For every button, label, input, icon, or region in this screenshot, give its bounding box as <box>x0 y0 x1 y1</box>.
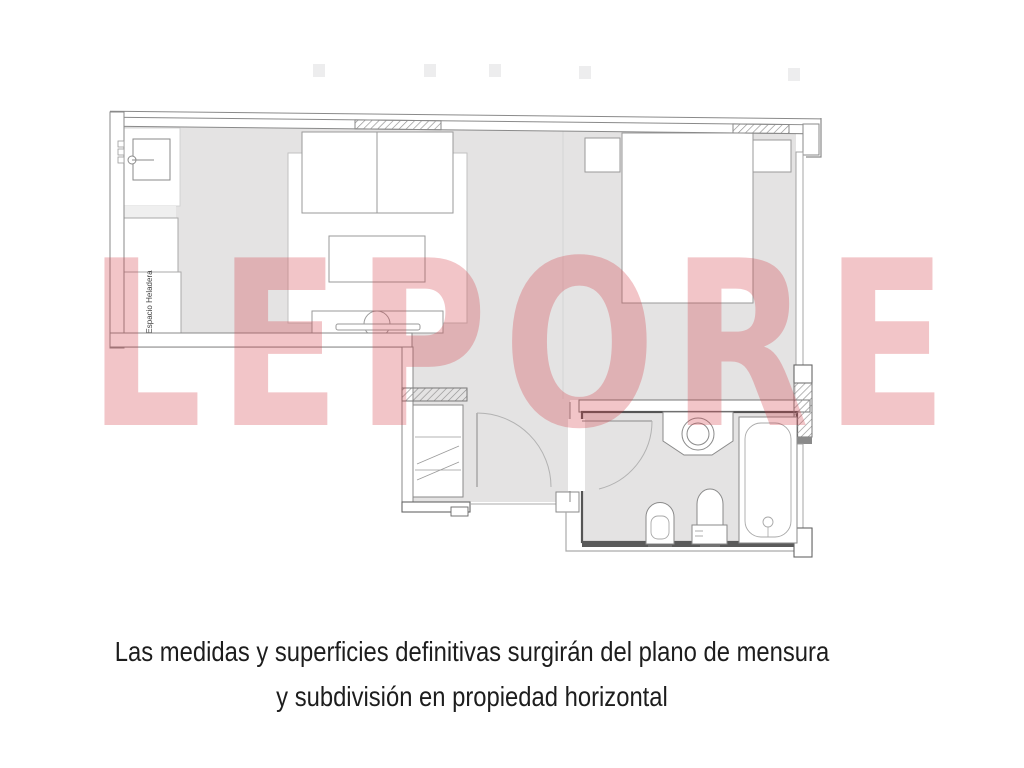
hatched-wall-top-2 <box>733 124 789 134</box>
disclaimer-line-1: Las medidas y superficies definitivas su… <box>71 630 873 675</box>
disclaimer: Las medidas y superficies definitivas su… <box>71 630 873 720</box>
living-room-furniture <box>288 132 467 337</box>
corner-column <box>803 124 819 155</box>
nightstand-left <box>585 138 620 172</box>
disclaimer-line-2: y subdivisión en propiedad horizontal <box>71 675 873 720</box>
bidet-bowl <box>697 489 723 525</box>
hatched-wall-hall <box>402 388 467 401</box>
kitchen-counter <box>124 218 178 272</box>
hall-closet <box>413 405 463 497</box>
toilet <box>646 502 674 544</box>
bedroom-window <box>796 152 803 365</box>
vanity-basin-inner <box>687 423 709 445</box>
living-bottom-wall <box>110 333 412 347</box>
hall-left-wall <box>402 347 413 502</box>
bathtub <box>739 417 797 543</box>
appliance-space-label: Espacio Heladera <box>145 270 154 334</box>
coffee-table <box>329 236 425 282</box>
bathroom-top-wall <box>579 400 810 412</box>
tv-screen <box>336 324 420 330</box>
bidet-tank <box>692 525 727 544</box>
right-wall-block <box>794 365 812 383</box>
kitchen-zone: Espacio Heladera <box>124 128 181 334</box>
left-wall-ticks <box>118 141 124 163</box>
entry-step <box>556 492 579 512</box>
hall-bottom-notch <box>451 507 468 516</box>
hatched-wall-top-1 <box>355 120 441 130</box>
top-edge-marks <box>313 64 800 81</box>
nightstand-right <box>753 140 791 172</box>
bed <box>622 133 753 303</box>
floorplan-page: Espacio Heladera <box>0 0 1024 768</box>
